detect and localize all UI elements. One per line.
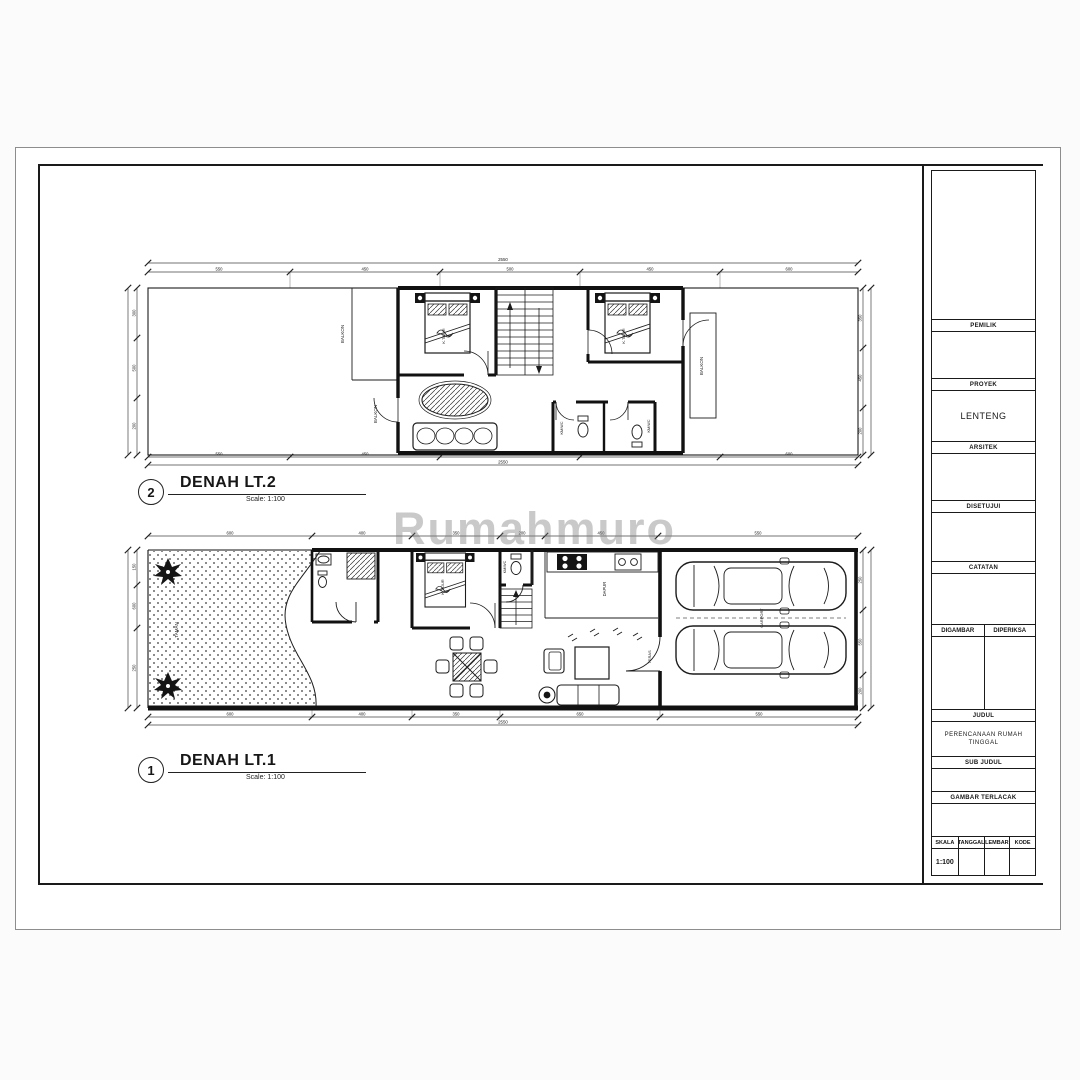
svg-text:400: 400 — [359, 712, 367, 717]
svg-text:550: 550 — [756, 712, 764, 717]
footer-value-row: 1:100 — [932, 849, 1035, 875]
svg-text:300: 300 — [132, 309, 137, 317]
code-value — [1009, 849, 1035, 875]
drawn-checked-box — [932, 637, 1035, 709]
car-icon — [676, 558, 846, 614]
stairs-icon — [496, 288, 553, 375]
floor2-caption-scale: Scale: 1:100 — [246, 496, 366, 503]
svg-text:200: 200 — [132, 422, 137, 430]
svg-text:400: 400 — [359, 531, 367, 536]
date-label: TANGGAL — [958, 837, 984, 848]
svg-text:500: 500 — [507, 267, 515, 272]
svg-text:450: 450 — [647, 267, 655, 272]
svg-text:K.TIDUR: K.TIDUR — [442, 328, 446, 343]
toilet-icon — [578, 416, 642, 447]
notes-label: CATATAN — [932, 561, 1035, 574]
checked-box — [984, 637, 1036, 709]
svg-text:600: 600 — [786, 267, 794, 272]
svg-text:CARPORT: CARPORT — [759, 608, 764, 628]
svg-text:150: 150 — [132, 563, 137, 571]
svg-text:450: 450 — [598, 531, 606, 536]
svg-text:450: 450 — [362, 452, 370, 457]
svg-text:500: 500 — [132, 364, 137, 372]
svg-text:550: 550 — [216, 267, 224, 272]
floor1-caption-number: 1 — [138, 757, 164, 783]
svg-text:KM/WC: KM/WC — [560, 421, 564, 434]
page: 2550 550 450 500 450 600 550 450 500 450… — [0, 0, 1080, 1080]
svg-text:2550: 2550 — [498, 460, 508, 465]
svg-text:TERAS: TERAS — [647, 650, 652, 664]
car-icon — [676, 622, 846, 678]
svg-text:650: 650 — [577, 712, 585, 717]
architect-box — [932, 454, 1035, 500]
title-block-logo-area — [932, 171, 1035, 319]
floor2-caption: 2 DENAH LT.2 Scale: 1:100 — [138, 474, 366, 505]
sub-judul-box — [932, 769, 1035, 791]
sub-judul-label: SUB JUDUL — [932, 756, 1035, 769]
svg-text:2550: 2550 — [498, 257, 508, 262]
bathroom-icons — [316, 553, 375, 622]
svg-text:550: 550 — [216, 452, 224, 457]
svg-text:KM/WC: KM/WC — [503, 560, 507, 573]
svg-text:550: 550 — [755, 531, 763, 536]
svg-text:600: 600 — [132, 602, 137, 610]
project-name: LENTENG — [932, 391, 1035, 441]
svg-text:DAPUR: DAPUR — [602, 582, 607, 597]
floor1-caption-title: DENAH LT.1 — [168, 752, 366, 773]
sheet-value — [984, 849, 1010, 875]
floor2-dim-right — [863, 288, 871, 455]
living-set-icons — [539, 628, 660, 705]
drawn-box — [932, 637, 984, 709]
dining-table-icon — [436, 637, 497, 697]
floor2-dim-top — [148, 263, 858, 288]
judul-box: PERENCANAAN RUMAH TINGGAL — [932, 722, 1035, 756]
svg-text:2550: 2550 — [498, 720, 508, 725]
floor2-outline — [148, 288, 858, 455]
judul-value: PERENCANAAN RUMAH TINGGAL — [932, 722, 1035, 756]
drawn-checked-header: DIGAMBAR DIPERIKSA — [932, 624, 1035, 637]
floor2-caption-title: DENAH LT.2 — [168, 474, 366, 495]
owner-label: PEMILIK — [932, 319, 1035, 332]
svg-text:K.TIDUR: K.TIDUR — [441, 579, 445, 594]
project-label: PROYEK — [932, 378, 1035, 391]
checked-label: DIPERIKSA — [984, 625, 1036, 636]
stairs-icon-floor1 — [500, 589, 532, 628]
svg-text:600: 600 — [227, 712, 235, 717]
floor1-dim-right — [863, 550, 871, 708]
sofa-icon — [413, 423, 497, 450]
svg-text:200: 200 — [858, 687, 863, 695]
owner-box — [932, 332, 1035, 378]
judul-label: JUDUL — [932, 709, 1035, 722]
svg-text:KM/WC: KM/WC — [647, 419, 651, 432]
svg-text:350: 350 — [453, 712, 461, 717]
architect-label: ARSITEK — [932, 441, 1035, 454]
date-value — [958, 849, 984, 875]
traced-label: GAMBAR TERLACAK — [932, 791, 1035, 804]
svg-text:BALKON: BALKON — [340, 325, 345, 343]
svg-text:250: 250 — [132, 664, 137, 672]
floor2-caption-number: 2 — [138, 479, 164, 505]
floor2-balconies — [352, 288, 716, 418]
svg-text:200: 200 — [519, 531, 527, 536]
svg-text:250: 250 — [858, 576, 863, 584]
oval-table-icon — [419, 381, 491, 419]
svg-text:450: 450 — [362, 267, 370, 272]
svg-text:TAMAN: TAMAN — [174, 622, 179, 637]
notes-box — [932, 574, 1035, 624]
approved-label: DISETUJUI — [932, 500, 1035, 513]
project-box: LENTENG — [932, 391, 1035, 441]
floor-plan-2: 2550 550 450 500 450 600 550 450 500 450… — [120, 250, 880, 470]
scale-value: 1:100 — [932, 849, 958, 875]
bedroom-door-arc — [470, 603, 495, 628]
wc-icons — [506, 550, 532, 602]
svg-text:BALKON: BALKON — [699, 357, 704, 375]
footer-header-row: SKALA TANGGAL LEMBAR KODE — [932, 836, 1035, 849]
title-block: PEMILIK PROYEK LENTENG ARSITEK DISETUJUI… — [922, 166, 1043, 883]
svg-text:550: 550 — [858, 638, 863, 646]
svg-text:350: 350 — [453, 531, 461, 536]
drawn-label: DIGAMBAR — [932, 625, 984, 636]
floor-plan-1: 600 400 350 200 450 550 600 400 350 650 … — [120, 525, 880, 735]
floor1-caption: 1 DENAH LT.1 Scale: 1:100 — [138, 752, 366, 783]
approved-box — [932, 513, 1035, 561]
code-label: KODE — [1009, 837, 1035, 848]
traced-box — [932, 804, 1035, 836]
svg-text:600: 600 — [227, 531, 235, 536]
svg-text:K.TIDUR: K.TIDUR — [622, 328, 626, 343]
svg-text:600: 600 — [786, 452, 794, 457]
sheet-label: LEMBAR — [984, 837, 1010, 848]
scale-label: SKALA — [932, 837, 958, 848]
floor1-caption-scale: Scale: 1:100 — [246, 774, 366, 781]
